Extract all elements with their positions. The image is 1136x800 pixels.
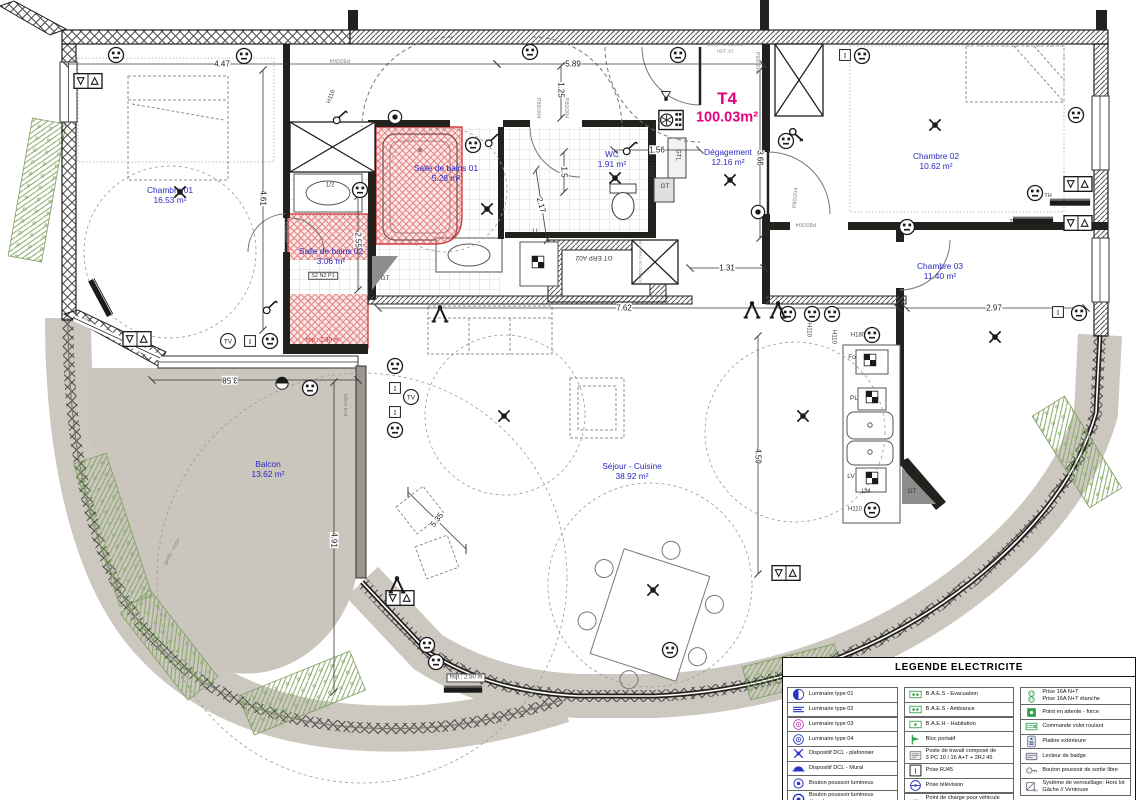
legend-row-label: Bouton poussoir lumineux étanche (809, 791, 897, 800)
legend-row-label: Luminaire type 01 (809, 690, 855, 699)
legend-row-label: Bouton poussoir de sortie libre (1042, 766, 1120, 775)
svg-text:Ven: Ven (1033, 789, 1038, 793)
legend-row-label: Système de verrouillage: Hors lot Gâche … (1042, 779, 1126, 795)
legend-row: Platine extérieure (1020, 734, 1131, 750)
legend-column: Prise 16A N+T Prise 16A N+T étanchePoint… (1020, 688, 1131, 800)
legend-row: Point de charge pour véhicule électrique… (904, 793, 1015, 800)
legend-row: B.A.E.S - Evacuation (904, 687, 1015, 703)
lum03-legend-icon (788, 718, 809, 731)
legend-row: Point en attente - force (1020, 704, 1131, 720)
sortie-legend-icon (1021, 764, 1042, 777)
legend-row: B.A.E.H - Habitation (904, 717, 1015, 733)
badge-legend-icon (1021, 750, 1042, 763)
legend-row: Lecteur de badge (1020, 748, 1131, 764)
legend-row-label: B.A.E.S - Evacuation (926, 690, 980, 699)
legend-row-label: Luminaire type 03 (809, 720, 855, 729)
legend-row-label: Prise 16A N+T Prise 16A N+T étanche (1042, 688, 1102, 704)
legend-row: Dispositif DCL - plafonnier (787, 746, 898, 762)
legend-row-label: Prise RJ45 (926, 766, 955, 775)
legend-row: Luminaire type 01 (787, 687, 898, 703)
legend-row-label: Point de charge pour véhicule électrique… (926, 794, 1002, 800)
bp-legend-icon (788, 777, 809, 790)
plat-legend-icon (1021, 735, 1042, 748)
legend-row: Bloc portatif (904, 731, 1015, 747)
lum01-legend-icon (788, 688, 809, 701)
legend-row: Prise télévision (904, 778, 1015, 794)
legend-row-label: Lecteur de badge (1042, 752, 1088, 761)
dclm-legend-icon (788, 762, 809, 775)
legend-row-label: Prise télévision (926, 781, 966, 790)
legend-row: Luminaire type 02 (787, 702, 898, 718)
legend-row-label: Dispositif DCL - plafonnier (809, 749, 876, 758)
verrou-legend-icon: Ven (1021, 780, 1042, 793)
legend-row: B.A.E.S - Ambiance (904, 702, 1015, 718)
poste-legend-icon (905, 749, 926, 762)
legend-row-label: Poste de travail composé de 3 PC 10 / 16… (926, 747, 999, 763)
baes-legend-icon (905, 688, 926, 701)
bloc-legend-icon (905, 733, 926, 746)
baes-legend-icon (905, 703, 926, 716)
legend-columns: Luminaire type 01Luminaire type 02Lumina… (783, 677, 1135, 800)
legend-column: Luminaire type 01Luminaire type 02Lumina… (787, 688, 898, 800)
lum02-legend-icon (788, 703, 809, 716)
legend-row: Luminaire type 04 (787, 731, 898, 747)
legend-row-label: Luminaire type 04 (809, 735, 855, 744)
legend-row: Commande volet roulant (1020, 719, 1131, 735)
baeh-legend-icon (905, 718, 926, 731)
force-legend-icon (1021, 706, 1042, 719)
rj-legend-icon: I (905, 764, 926, 777)
cvr-legend-icon (1021, 720, 1042, 733)
legend-row-label: B.A.E.H - Habitation (926, 720, 978, 729)
legend-row-label: B.A.E.S - Ambiance (926, 705, 977, 714)
lum04l-legend-icon (788, 733, 809, 746)
dcll-legend-icon (788, 747, 809, 760)
legend-row: Bouton poussoir lumineux (787, 775, 898, 791)
legend-title: LEGENDE ELECTRICITE (783, 658, 1135, 677)
bpe-legend-icon (788, 793, 809, 800)
legend-row-label: Luminaire type 02 (809, 705, 855, 714)
p16-legend-icon (1021, 690, 1042, 703)
legend-row: Bouton poussoir de sortie libre (1020, 763, 1131, 779)
electric-legend: LEGENDE ELECTRICITE Luminaire type 01Lum… (782, 657, 1136, 800)
legend-row-label: Commande volet roulant (1042, 722, 1105, 731)
legend-row-label: Platine extérieure (1042, 737, 1088, 746)
legend-row-label: Bloc portatif (926, 735, 958, 744)
legend-column: B.A.E.S - EvacuationB.A.E.S - AmbianceB.… (904, 688, 1015, 800)
legend-row-label: Bouton poussoir lumineux (809, 779, 875, 788)
tvp-legend-icon (905, 779, 926, 792)
legend-row: Bouton poussoir lumineux étanche (787, 790, 898, 800)
floor-plan-page: T4100.03m²Chambre 01 16.53 m²Salle de ba… (0, 0, 1136, 800)
legend-row: Prise 16A N+T Prise 16A N+T étanche (1020, 687, 1131, 705)
legend-row: VenSystème de verrouillage: Hors lot Gâc… (1020, 778, 1131, 796)
legend-row: Dispositif DCL - Mural (787, 761, 898, 777)
legend-row: IPrise RJ45 (904, 763, 1015, 779)
legend-row: Luminaire type 03 (787, 717, 898, 733)
legend-row-label: Dispositif DCL - Mural (809, 764, 865, 773)
legend-row: Poste de travail composé de 3 PC 10 / 16… (904, 746, 1015, 764)
legend-row-label: Point en attente - force (1042, 708, 1101, 717)
